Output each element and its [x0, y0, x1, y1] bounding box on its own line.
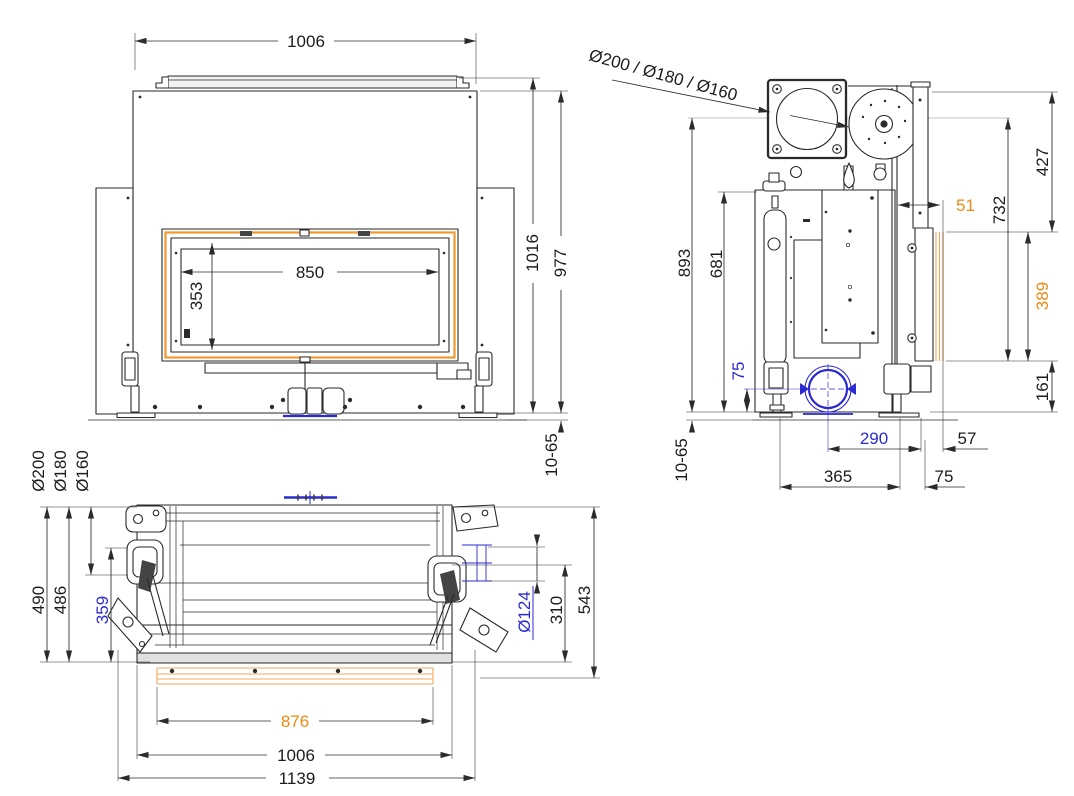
dim-side-flue-options: Ø200 / Ø180 / Ø160 [587, 46, 740, 105]
dim-side-air-inlet-height: 75 [729, 362, 748, 381]
dim-front-glass-height: 353 [187, 282, 206, 310]
dim-front-glass-width: 850 [296, 263, 324, 282]
dim-top-air-depth: 359 [93, 596, 112, 624]
dim-side-flue-to-frame: 732 [990, 196, 1009, 224]
dim-front-feet-range: 10-65 [542, 433, 561, 476]
dim-top-total-depth: 543 [575, 586, 594, 614]
front-geometry [88, 76, 527, 420]
dim-top-depth-180: 486 [51, 586, 70, 614]
technical-drawing-page: 1006 850 353 1016 977 10-65 [0, 0, 1074, 796]
dim-side-feet-depth: 365 [824, 467, 852, 486]
dim-top-body-width: 1006 [277, 746, 315, 765]
dim-side-frame-offset: 51 [956, 196, 975, 215]
dim-top-front-depth: 310 [547, 596, 566, 624]
dim-top-grille-width: 876 [281, 712, 309, 731]
dim-top-flue-option-160: Ø160 [73, 450, 92, 492]
top-geometry [108, 491, 508, 684]
dim-side-frame-height: 389 [1033, 282, 1052, 310]
top-view: Ø200 Ø180 Ø160 490 486 359 Ø124 [29, 450, 600, 788]
front-view: 1006 850 353 1016 977 10-65 [88, 32, 570, 477]
dim-side-body-height: 681 [707, 250, 726, 278]
dim-side-air-inlet-offset: 290 [860, 429, 888, 448]
dim-side-flue-center-height: 893 [675, 249, 694, 277]
dim-front-height-total: 1016 [523, 234, 542, 272]
dim-side-base-height: 161 [1033, 373, 1052, 401]
drawing-svg: 1006 850 353 1016 977 10-65 [0, 0, 1074, 796]
side-view: Ø200 / Ø180 / Ø160 893 681 10-65 75 427 [587, 46, 1058, 490]
dim-front-height-body: 977 [551, 249, 570, 277]
dim-front-width: 1006 [287, 32, 325, 51]
dim-side-top-to-flue: 427 [1033, 148, 1052, 176]
dim-side-feet-range: 10-65 [672, 438, 691, 481]
dim-side-front-gap: 57 [958, 429, 977, 448]
dim-top-flue-option-180: Ø180 [51, 450, 70, 492]
dim-top-air-diameter: Ø124 [515, 591, 534, 633]
dim-top-total-width: 1139 [279, 769, 316, 788]
dim-side-front-feet-gap: 75 [935, 467, 954, 486]
dim-top-depth-200: 490 [29, 586, 48, 614]
dim-top-flue-option-200: Ø200 [29, 450, 48, 492]
